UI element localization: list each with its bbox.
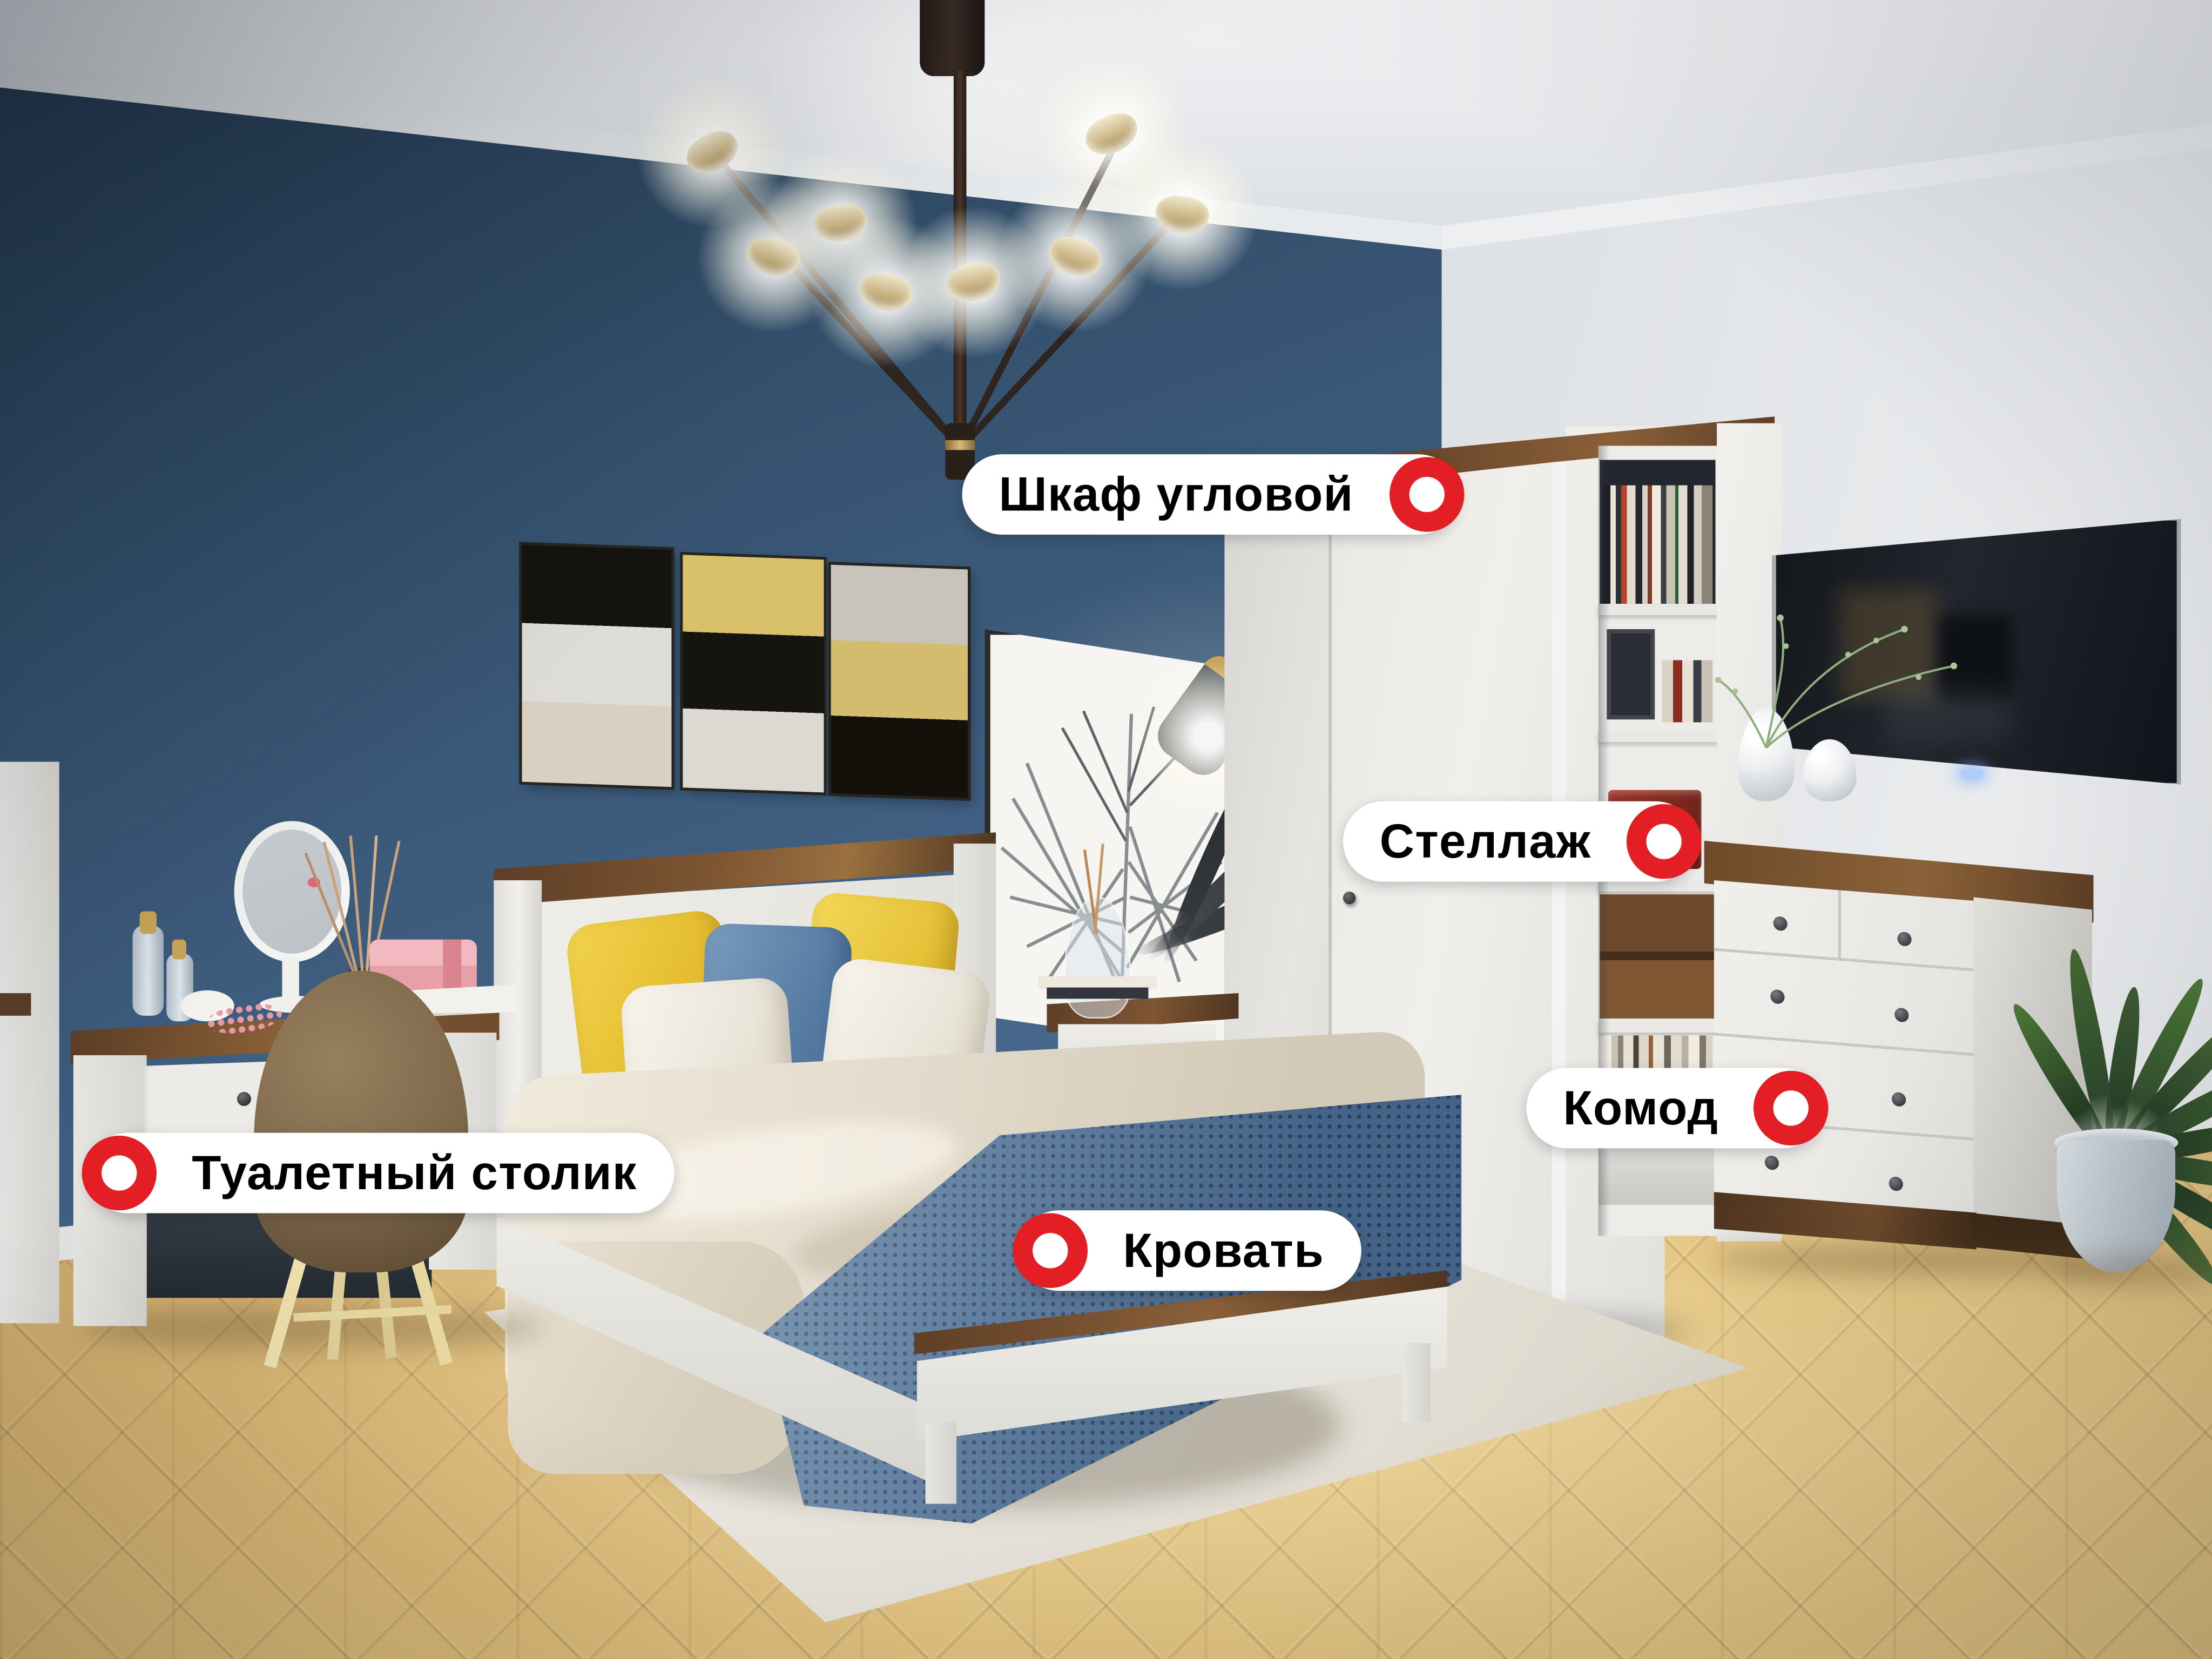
label-bed[interactable]: Кровать bbox=[1019, 1210, 1361, 1291]
label-text: Кровать bbox=[1123, 1226, 1324, 1274]
chair-upholstered-back bbox=[254, 970, 468, 1272]
label-text: Туалетный столик bbox=[192, 1149, 637, 1197]
label-chest-of-drawers[interactable]: Комод bbox=[1526, 1068, 1823, 1148]
vanity-chair bbox=[0, 0, 2212, 1659]
label-text: Стеллаж bbox=[1380, 818, 1591, 866]
label-text: Шкаф угловой bbox=[999, 470, 1353, 518]
marker-ring-icon bbox=[1389, 457, 1464, 531]
label-shelving-unit[interactable]: Стеллаж bbox=[1343, 801, 1696, 882]
marker-ring-icon bbox=[1626, 804, 1701, 879]
chair-leg bbox=[264, 1251, 309, 1368]
bedroom-catalog-photo: Шкаф угловой Стеллаж Комод Кровать Туале… bbox=[0, 0, 2212, 1659]
label-text: Комод bbox=[1563, 1084, 1718, 1132]
chair-leg bbox=[327, 1258, 347, 1360]
marker-ring-icon bbox=[1754, 1071, 1829, 1145]
label-corner-wardrobe[interactable]: Шкаф угловой bbox=[962, 454, 1458, 535]
marker-ring-icon bbox=[1013, 1213, 1088, 1288]
scene: Шкаф угловой Стеллаж Комод Кровать Туале… bbox=[0, 0, 2212, 1659]
marker-ring-icon bbox=[82, 1136, 157, 1210]
label-vanity-table[interactable]: Туалетный столик bbox=[87, 1133, 674, 1213]
